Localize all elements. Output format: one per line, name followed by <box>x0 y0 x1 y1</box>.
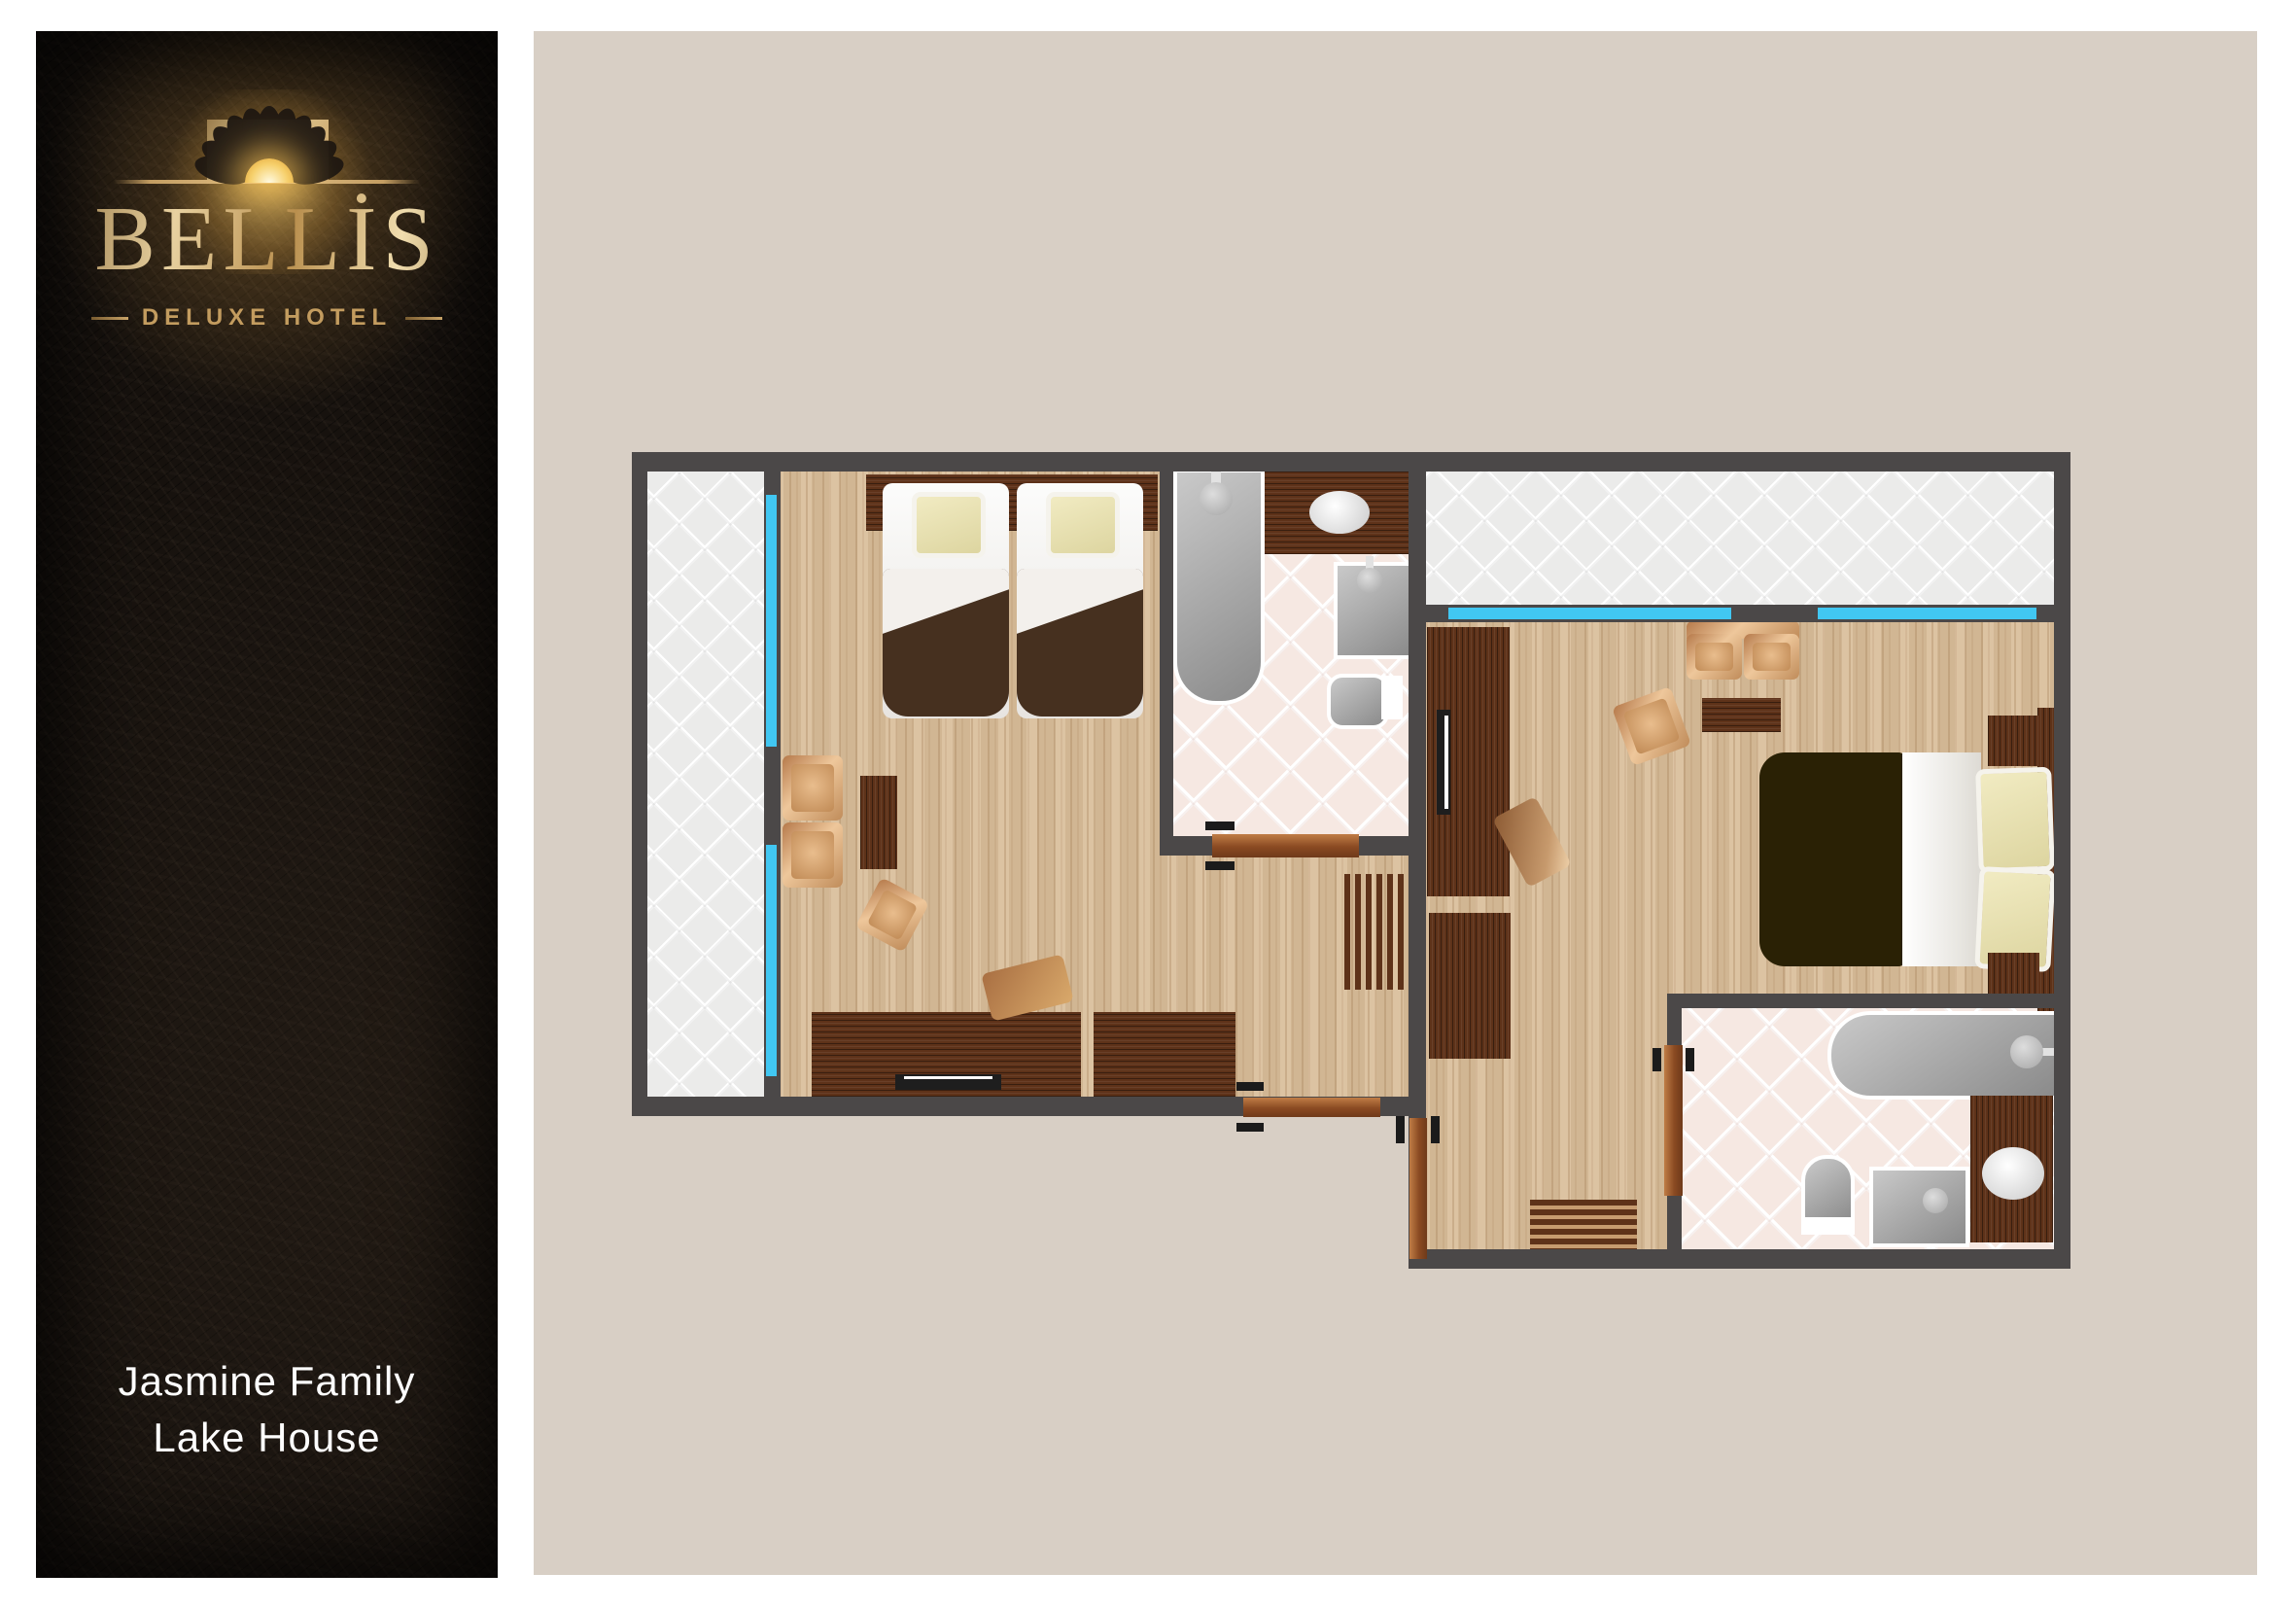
nightstand-1 <box>1988 716 2039 766</box>
bathroom-1-door-hinge-bottom <box>1205 861 1235 870</box>
bathroom-2-tub-faucet <box>2010 1035 2043 1068</box>
dresser-2 <box>1094 1012 1235 1097</box>
dresser-1-handle <box>895 1074 1001 1090</box>
coffee-table <box>1702 698 1781 732</box>
twin-bed-1-duvet <box>883 569 1009 717</box>
wardrobe-1-handle <box>1437 710 1450 815</box>
window-terrace-1-upper <box>766 495 777 747</box>
bathroom-2-sink <box>1982 1147 2044 1200</box>
entry-door-hinge-right <box>1431 1116 1440 1143</box>
suite-entry-door <box>1409 1118 1427 1259</box>
loveseat-seat-1 <box>1687 634 1742 680</box>
bathroom-1-basin-faucet <box>1357 568 1382 593</box>
bathroom-1-toilet-bowl <box>1327 674 1389 729</box>
twin-bed-2-duvet <box>1017 569 1143 717</box>
armchair-1 <box>783 755 843 821</box>
wall-west <box>632 452 647 1116</box>
terrace-2-floor <box>1419 462 2059 610</box>
room-1-door-hinge-bottom <box>1236 1123 1264 1132</box>
window-terrace-2-right <box>1818 608 2036 619</box>
window-terrace-1-lower <box>766 845 777 1076</box>
twin-bed-1-pillow <box>912 492 986 558</box>
bathroom-2-door-hinge-left <box>1652 1048 1661 1071</box>
bathroom-1-sink <box>1309 491 1370 534</box>
floor-plan <box>0 0 2296 1608</box>
bathroom-1-door <box>1212 834 1359 857</box>
bathroom-2-door-hinge-right <box>1686 1048 1694 1071</box>
side-table-1 <box>860 776 897 869</box>
double-bed-pillow-1 <box>1975 767 2055 874</box>
entry-door-hinge-left <box>1396 1116 1405 1143</box>
room-1-exterior-door <box>1243 1098 1380 1117</box>
double-bed-sheet <box>1902 752 1981 966</box>
bathroom-2-toilet-bowl <box>1801 1155 1855 1227</box>
wall-south-room2 <box>1409 1249 2070 1269</box>
terrace-1-floor <box>642 467 768 1099</box>
wall-bathroom-2-north <box>1667 994 2054 1008</box>
bathroom-2-shower-tray <box>1869 1167 1969 1247</box>
wall-north <box>632 452 2070 472</box>
bathroom-1-toilet-tank <box>1381 676 1403 719</box>
wall-east <box>2054 452 2070 1269</box>
bathroom-2-door <box>1664 1045 1683 1196</box>
window-terrace-2-left <box>1448 608 1731 619</box>
room-1-door-hinge-top <box>1236 1082 1264 1091</box>
armchair-2 <box>783 822 843 888</box>
double-bed-duvet <box>1759 752 1906 966</box>
bathroom-1-shower-head <box>1200 482 1233 515</box>
bathroom-2-toilet-seat <box>1801 1217 1855 1235</box>
bathroom-1-door-hinge-top <box>1205 821 1235 830</box>
bathroom-2-shower-faucet <box>1923 1188 1948 1213</box>
twin-bed-2-pillow <box>1046 492 1120 558</box>
wall-bathroom-1-west <box>1160 452 1173 856</box>
loveseat-seat-2 <box>1744 634 1799 680</box>
radiator-mat <box>1344 874 1407 990</box>
wardrobe-2 <box>1429 913 1511 1059</box>
